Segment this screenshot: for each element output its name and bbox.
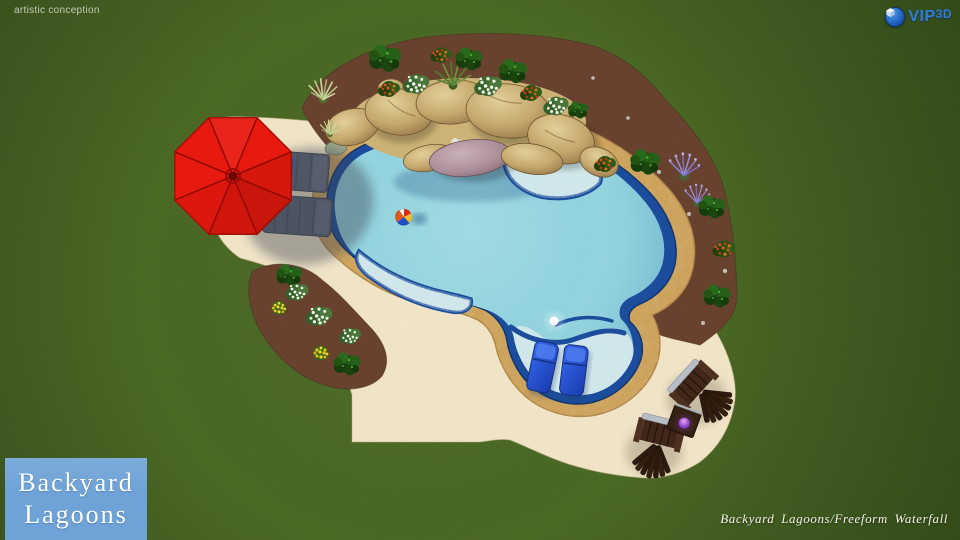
backyard-lagoons-logo: Backyard Lagoons	[5, 458, 147, 540]
artistic-conception-watermark: artistic conception	[14, 5, 100, 16]
beach-ball-shadow	[411, 213, 427, 225]
logo-line-1: Backyard	[18, 468, 134, 498]
vip3d-wordmark: VIP3D	[908, 8, 952, 26]
cube-icon	[885, 7, 896, 18]
design-caption: Backyard Lagoons/Freeform Waterfall	[720, 511, 948, 527]
plant-flowers	[314, 346, 329, 361]
cube-3d-badge-icon	[885, 7, 905, 27]
bubbler-light	[550, 317, 559, 326]
vip3d-logo: VIP3D	[885, 7, 952, 27]
umbrella-hub	[229, 172, 238, 181]
vip3d-text-vip: VIP	[908, 8, 935, 25]
vip3d-text-3d: 3D	[936, 7, 952, 21]
watermark-text: artistic conception	[14, 5, 100, 16]
logo-line-2: Lagoons	[24, 500, 128, 530]
patio-umbrella	[175, 118, 291, 234]
plant-flowers	[272, 301, 286, 315]
pool-design-rendering: artistic conception VIP3D Backyard Lagoo…	[0, 0, 960, 540]
